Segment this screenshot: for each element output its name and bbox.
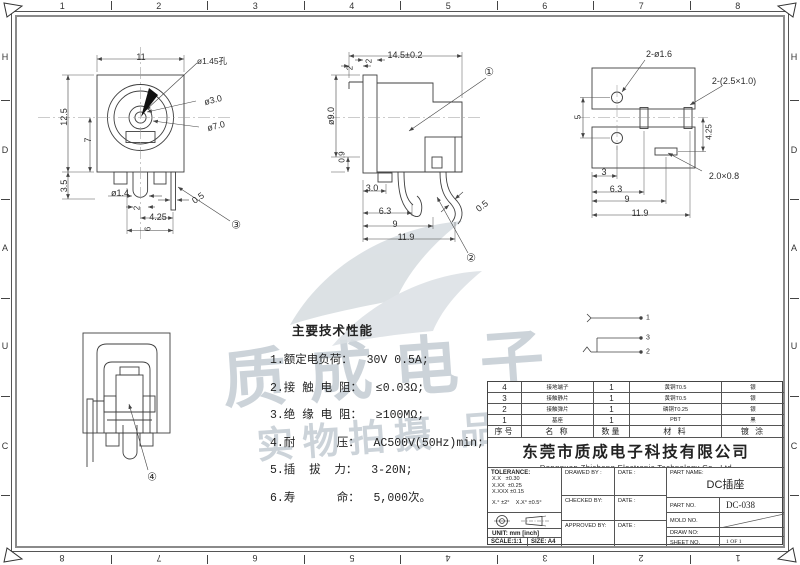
dim-label: 2.0×0.8	[709, 171, 739, 181]
tolerance-cell: TOLERANCE: X.X ±0.30X.XX ±0.25X.XXX ±0.1…	[488, 468, 562, 513]
dim-label: 12.5	[59, 108, 69, 126]
bom-cell: 接地端子	[522, 382, 594, 393]
part-no-cell: PART NO. DC-038	[667, 498, 784, 513]
part-name-value: DC插座	[667, 476, 784, 492]
projection-cell	[488, 513, 562, 529]
drawed-by-label: DRAWED BY :	[562, 468, 614, 476]
dim-label: 2	[646, 349, 650, 356]
front-view	[38, 47, 232, 240]
dim-label: 2	[133, 206, 142, 210]
empty-field-slash	[720, 513, 784, 528]
dim-label: ②	[466, 252, 476, 265]
size-cell: SIZE: A4	[528, 538, 562, 546]
unit-label: UNIT: mm [inch]	[488, 530, 539, 537]
dim-label: 7	[83, 137, 93, 142]
drawing-sheet: 质成电子 实物拍摄 品质保证 1234567887654321HDAUCHDAU…	[0, 0, 800, 565]
dim-label: ø1.4	[111, 188, 129, 198]
bom-cell: 1	[594, 382, 630, 393]
spec-item: 4.耐 压： AC500V(50Hz)min;	[270, 430, 485, 458]
bom-cell: 1	[594, 415, 630, 426]
tolerance-label: TOLERANCE:	[488, 468, 561, 476]
dim-label: 2	[346, 66, 355, 70]
bom-cell: 接触静片	[522, 393, 594, 404]
company-cell: 东莞市质成电子科技有限公司 Dongguan Zhicheng Electron…	[488, 438, 784, 468]
side-view	[328, 52, 486, 253]
date-label: DATE :	[615, 468, 666, 476]
bom-cell: 4	[488, 382, 522, 393]
tolerance-lines: X.X ±0.30X.XX ±0.25X.XXX ±0.15X.° ±2° X.…	[488, 476, 561, 506]
approved-by-label: APPROVED BY:	[562, 521, 614, 529]
scale-label: SCALE:1:1	[488, 539, 522, 545]
tolerance-line: X.° ±2° X.X° ±0.5°	[488, 500, 561, 507]
dim-label: ③	[231, 219, 241, 232]
drawed-by-cell: DRAWED BY :	[562, 468, 615, 496]
unit-cell: UNIT: mm [inch]	[488, 529, 562, 538]
bom-cell: PBT	[630, 415, 722, 426]
spec-item: 6.寿 命： 5,000次。	[270, 485, 485, 513]
sheet-no-label: SHEET NO.	[667, 537, 720, 546]
date-label: DATE :	[615, 521, 666, 529]
company-name-cn: 东莞市质成电子科技有限公司	[488, 440, 784, 462]
dim-label: 4.25	[705, 124, 714, 140]
sheet-no-value: 1 OF 1	[720, 539, 742, 545]
technical-specs: 主要技术性能 1.额定电负荷： 30V 0.5A;2.接 触 电 阻： ≤0.0…	[270, 320, 485, 512]
drawed-date-cell: DATE :	[615, 468, 667, 496]
approved-date-cell: DATE :	[615, 521, 667, 546]
spec-item: 2.接 触 电 阻： ≤0.03Ω;	[270, 375, 485, 403]
dim-label: 6.3	[379, 206, 392, 216]
spec-item: 5.插 拔 力： 3-20N;	[270, 457, 485, 485]
size-label: SIZE: A4	[528, 539, 555, 545]
part-name-cell: PART NAME: DC插座	[667, 468, 784, 498]
bottom-view	[578, 60, 722, 218]
specs-list: 1.额定电负荷： 30V 0.5A;2.接 触 电 阻： ≤0.03Ω;3.绝 …	[270, 347, 485, 512]
mold-no-cell: MOLD NO.	[667, 513, 784, 528]
dim-label: ø9.0	[326, 107, 336, 125]
checked-by-label: CHECKED BY:	[562, 496, 614, 504]
bom-header-cell: 名 称	[522, 426, 594, 438]
dim-label: 11.9	[398, 232, 415, 242]
bom-cell: 黄铜T0.5	[630, 382, 722, 393]
checked-by-cell: CHECKED BY:	[562, 496, 615, 521]
title-block: 4接地端子1黄铜T0.5银3接触静片1黄铜T0.5银2接触弹片1磷铜T0.25银…	[487, 381, 783, 545]
dim-label: 2	[365, 59, 374, 63]
approved-by-cell: APPROVED BY:	[562, 521, 615, 546]
draw-no-label: DRAW NO:	[667, 528, 720, 537]
dim-label: 2-(2.5×1.0)	[712, 76, 756, 86]
dim-label: ④	[147, 471, 157, 484]
part-name-label: PART NAME:	[667, 468, 704, 476]
bom-cell: 3	[488, 393, 522, 404]
spec-item: 1.额定电负荷： 30V 0.5A;	[270, 347, 485, 375]
dim-label: 3.0	[366, 183, 379, 193]
dim-label: 0.9	[338, 151, 347, 162]
bom-header-cell: 数量	[594, 426, 630, 438]
bom-cell: 1	[594, 404, 630, 415]
bom-cell: 2	[488, 404, 522, 415]
projection-symbol-icon	[488, 513, 562, 529]
bom-cell: 黑	[722, 415, 784, 426]
bom-cell: 1	[488, 415, 522, 426]
checked-date-cell: DATE :	[615, 496, 667, 521]
bom-cell: 银	[722, 393, 784, 404]
sheet-no-cell: SHEET NO. 1 OF 1	[667, 537, 784, 546]
bom-cell: 接触弹片	[522, 404, 594, 415]
dim-label: 9	[624, 194, 629, 204]
dim-label: 3.5	[59, 180, 69, 193]
bom-header-cell: 序号	[488, 426, 522, 438]
dim-label: 3	[646, 335, 650, 342]
dim-label: 3	[601, 167, 606, 177]
bom-header-cell: 材 料	[630, 426, 722, 438]
tolerance-line: X.XXX ±0.15	[488, 489, 561, 496]
spec-item: 3.绝 缘 电 阻： ≥100MΩ;	[270, 402, 485, 430]
dim-label: 11	[136, 52, 145, 62]
schematic-symbol	[583, 314, 642, 353]
bom-header-cell: 镀 涂	[722, 426, 784, 438]
bom-cell: 基座	[522, 415, 594, 426]
dim-label: 6.3	[610, 184, 623, 194]
dim-label: ①	[484, 66, 494, 79]
date-label: DATE :	[615, 496, 666, 504]
dim-label: 14.5±0.2	[388, 50, 423, 60]
mold-no-label: MOLD NO.	[667, 513, 720, 528]
draw-no-cell: DRAW NO:	[667, 528, 784, 537]
bom-cell: 1	[594, 393, 630, 404]
dim-label: 6	[144, 227, 153, 231]
dim-label: 11.9	[632, 208, 649, 218]
bom-cell: 磷铜T0.25	[630, 404, 722, 415]
dim-label: 2-ø1.6	[646, 49, 672, 59]
back-view	[83, 333, 170, 470]
dim-label: ø1.45孔	[197, 55, 227, 67]
dim-label: 9	[392, 219, 397, 229]
bom-cell: 银	[722, 404, 784, 415]
scale-cell: SCALE:1:1	[488, 538, 528, 546]
dim-label: 4.25	[149, 212, 167, 222]
part-no-label: PART NO.	[667, 498, 720, 513]
bom-cell: 黄铜T0.5	[630, 393, 722, 404]
bom-cell: 银	[722, 382, 784, 393]
dim-label: 1	[646, 315, 650, 322]
specs-title: 主要技术性能	[292, 320, 485, 339]
part-no-value: DC-038	[720, 500, 755, 510]
dim-label: 5	[574, 115, 583, 119]
